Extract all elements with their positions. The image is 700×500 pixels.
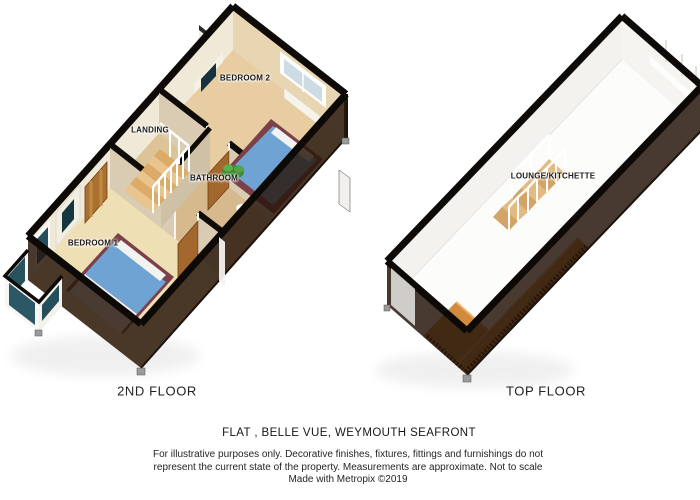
- room-label-bathroom: BATHROOM: [190, 174, 238, 183]
- floor-label-2nd-floor: 2ND FLOOR: [117, 384, 197, 399]
- room-label-lounge-kitchette: LOUNGE/KITCHETTE: [511, 172, 596, 181]
- disclaimer-block: For illustrative purposes only. Decorati…: [48, 449, 648, 487]
- plan-2nd-floor: [5, 6, 350, 375]
- disclaimer-line-1: For illustrative purposes only. Decorati…: [48, 449, 648, 462]
- property-title: FLAT , BELLE VUE, WEYMOUTH SEAFRONT: [222, 427, 476, 439]
- plan-top-floor: [384, 16, 700, 382]
- metropix-credit: Made with Metropix ©2019: [48, 474, 648, 487]
- room-label-bedroom-2: BEDROOM 2: [220, 74, 270, 83]
- room-label-bedroom-1: BEDROOM 1: [68, 239, 118, 248]
- floorplan-page: BEDROOM 2 LANDING BATHROOM BEDROOM 1 LOU…: [0, 0, 700, 500]
- room-label-landing: LANDING: [131, 126, 169, 135]
- shadow-left-plan: [10, 336, 200, 376]
- chimney-se: [339, 170, 350, 212]
- disclaimer-line-2: represent the current state of the prope…: [48, 462, 648, 475]
- floorplan-drawing: [0, 0, 700, 500]
- floor-label-top-floor: TOP FLOOR: [506, 384, 586, 399]
- door-frame-sliver: [219, 237, 225, 286]
